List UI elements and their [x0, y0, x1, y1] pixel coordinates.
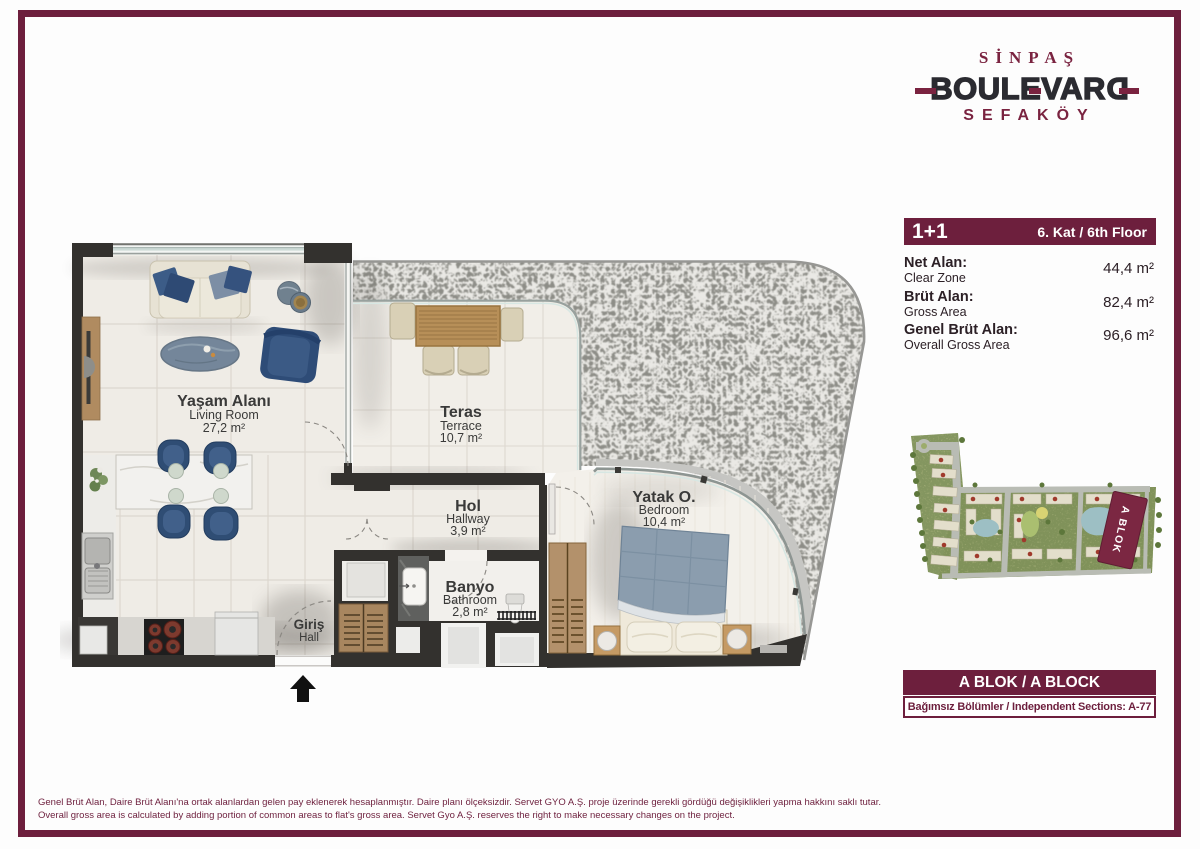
svg-text:10,4 m²: 10,4 m² [643, 515, 685, 529]
svg-text:27,2 m²: 27,2 m² [203, 421, 245, 435]
svg-text:2,8 m²: 2,8 m² [452, 605, 487, 619]
svg-text:Giriş: Giriş [294, 617, 325, 632]
svg-text:Hall: Hall [299, 632, 319, 644]
svg-text:Living Room: Living Room [189, 408, 258, 422]
svg-text:3,9 m²: 3,9 m² [450, 524, 485, 538]
svg-text:10,7 m²: 10,7 m² [440, 431, 482, 445]
